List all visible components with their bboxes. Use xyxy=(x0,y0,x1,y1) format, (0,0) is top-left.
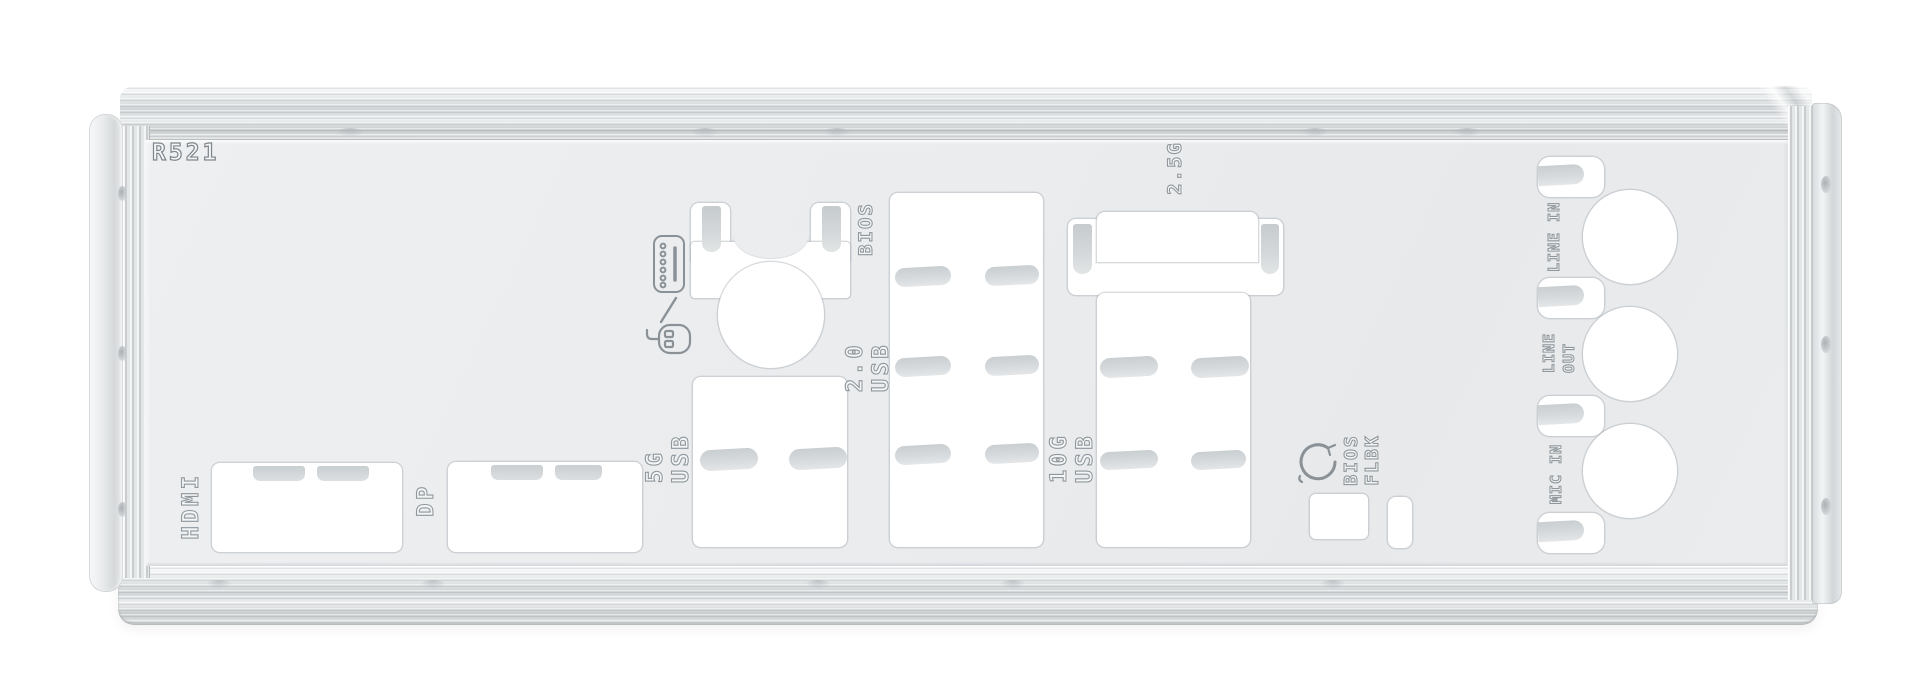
bent-tab xyxy=(822,206,841,252)
usb-5g-label-line1: 5G xyxy=(643,433,669,483)
rail-notch xyxy=(206,580,232,589)
bios-flashback-label-line1: BIOS xyxy=(1341,434,1362,485)
bent-tab xyxy=(1261,224,1279,274)
line-out-jack-hole xyxy=(1583,307,1677,401)
hdmi-cutout xyxy=(212,463,402,552)
rail-notch xyxy=(690,128,720,137)
bent-tab xyxy=(985,443,1040,465)
bent-tab xyxy=(985,265,1040,287)
bent-tab xyxy=(788,446,847,470)
usb-20-label-line1: 2.0 xyxy=(843,342,869,392)
line-in-label: LINE IN xyxy=(1544,202,1564,272)
lan-25g-cutout-top xyxy=(1097,212,1258,262)
bent-tab xyxy=(895,356,952,378)
bent-tab xyxy=(895,266,952,288)
bent-tab xyxy=(1538,403,1585,425)
bent-tab xyxy=(1538,164,1585,186)
embossed-code: R521 xyxy=(152,140,219,166)
edge-dimple xyxy=(118,502,127,517)
bent-tab xyxy=(985,355,1040,377)
rail-notch xyxy=(335,128,365,137)
usb-5g-label-line2: USB xyxy=(669,433,695,483)
lan-25g-label: 2.5G xyxy=(1164,141,1186,195)
bent-tab xyxy=(491,465,543,480)
usb-10g-label-line2: USB xyxy=(1073,433,1099,483)
usb-10g-label: 10G USB xyxy=(1047,433,1099,483)
rail-notch xyxy=(1300,128,1330,137)
bent-tab xyxy=(1191,355,1250,378)
bent-tab xyxy=(1100,449,1159,470)
bent-tab xyxy=(253,466,305,481)
hdmi-label: HDMI xyxy=(179,473,205,540)
mic-in-jack-hole xyxy=(1583,424,1677,518)
rail-notch xyxy=(1320,580,1346,589)
audio-spring-slot xyxy=(1538,278,1604,318)
edge-dimple xyxy=(1821,498,1831,515)
bent-tab xyxy=(1073,224,1092,274)
ps2-keyboard-icon xyxy=(652,234,688,294)
ps2-round-cutout xyxy=(718,262,824,368)
line-out-label-line2: OUT xyxy=(1559,333,1579,373)
usb-5g-label: 5G USB xyxy=(643,433,695,483)
bios-flashback-label: BIOS FLBK xyxy=(1341,434,1383,485)
flashback-usb-cutout xyxy=(1310,494,1368,539)
bottom-rail xyxy=(118,566,1818,625)
rail-notch xyxy=(805,580,831,589)
usb-20-label: 2.0 USB xyxy=(843,342,895,392)
bent-tab xyxy=(1538,285,1585,307)
bent-tab xyxy=(1191,450,1247,471)
rail-notch xyxy=(420,580,446,589)
flashback-button-slot xyxy=(1388,497,1412,548)
bent-tab xyxy=(317,466,369,481)
ps2-mouse-icon xyxy=(643,322,693,356)
bent-tab xyxy=(699,447,758,471)
bios-flashback-label-line2: FLBK xyxy=(1362,434,1383,485)
bent-tab xyxy=(702,206,721,252)
rail-notch xyxy=(1000,580,1026,589)
edge-dimple xyxy=(1821,336,1831,353)
bent-tab xyxy=(1100,355,1159,378)
slash-separator-icon xyxy=(656,296,682,324)
edge-dimple xyxy=(118,186,127,201)
ps2-bios-label: BIOS xyxy=(855,202,877,256)
line-out-label-line1: LINE xyxy=(1539,333,1559,373)
top-rail xyxy=(120,86,1812,140)
displayport-cutout xyxy=(448,462,642,552)
line-in-jack-hole xyxy=(1583,190,1677,284)
mic-in-label: MIC IN xyxy=(1546,444,1566,504)
bios-flashback-arrow-icon xyxy=(1294,438,1342,492)
audio-spring-slot xyxy=(1538,157,1604,197)
bent-tab xyxy=(555,465,602,480)
edge-dimple xyxy=(1821,176,1831,193)
bent-tab xyxy=(895,444,952,466)
audio-spring-slot xyxy=(1538,396,1604,436)
usb-10g-label-line1: 10G xyxy=(1047,433,1073,483)
edge-dimple xyxy=(118,346,127,361)
right-fold-ridges xyxy=(1788,106,1814,600)
line-out-label: LINE OUT xyxy=(1539,333,1579,373)
usb-20-label-line2: USB xyxy=(869,342,895,392)
rail-notch xyxy=(1452,128,1482,137)
rail-notch xyxy=(822,128,852,137)
io-shield-photo: R521 HDMI DP 5G USB xyxy=(0,0,1923,700)
dp-label: DP xyxy=(414,483,440,517)
audio-spring-slot xyxy=(1538,513,1604,553)
bent-tab xyxy=(1538,520,1585,542)
usb-10g-cutout xyxy=(1097,293,1250,547)
